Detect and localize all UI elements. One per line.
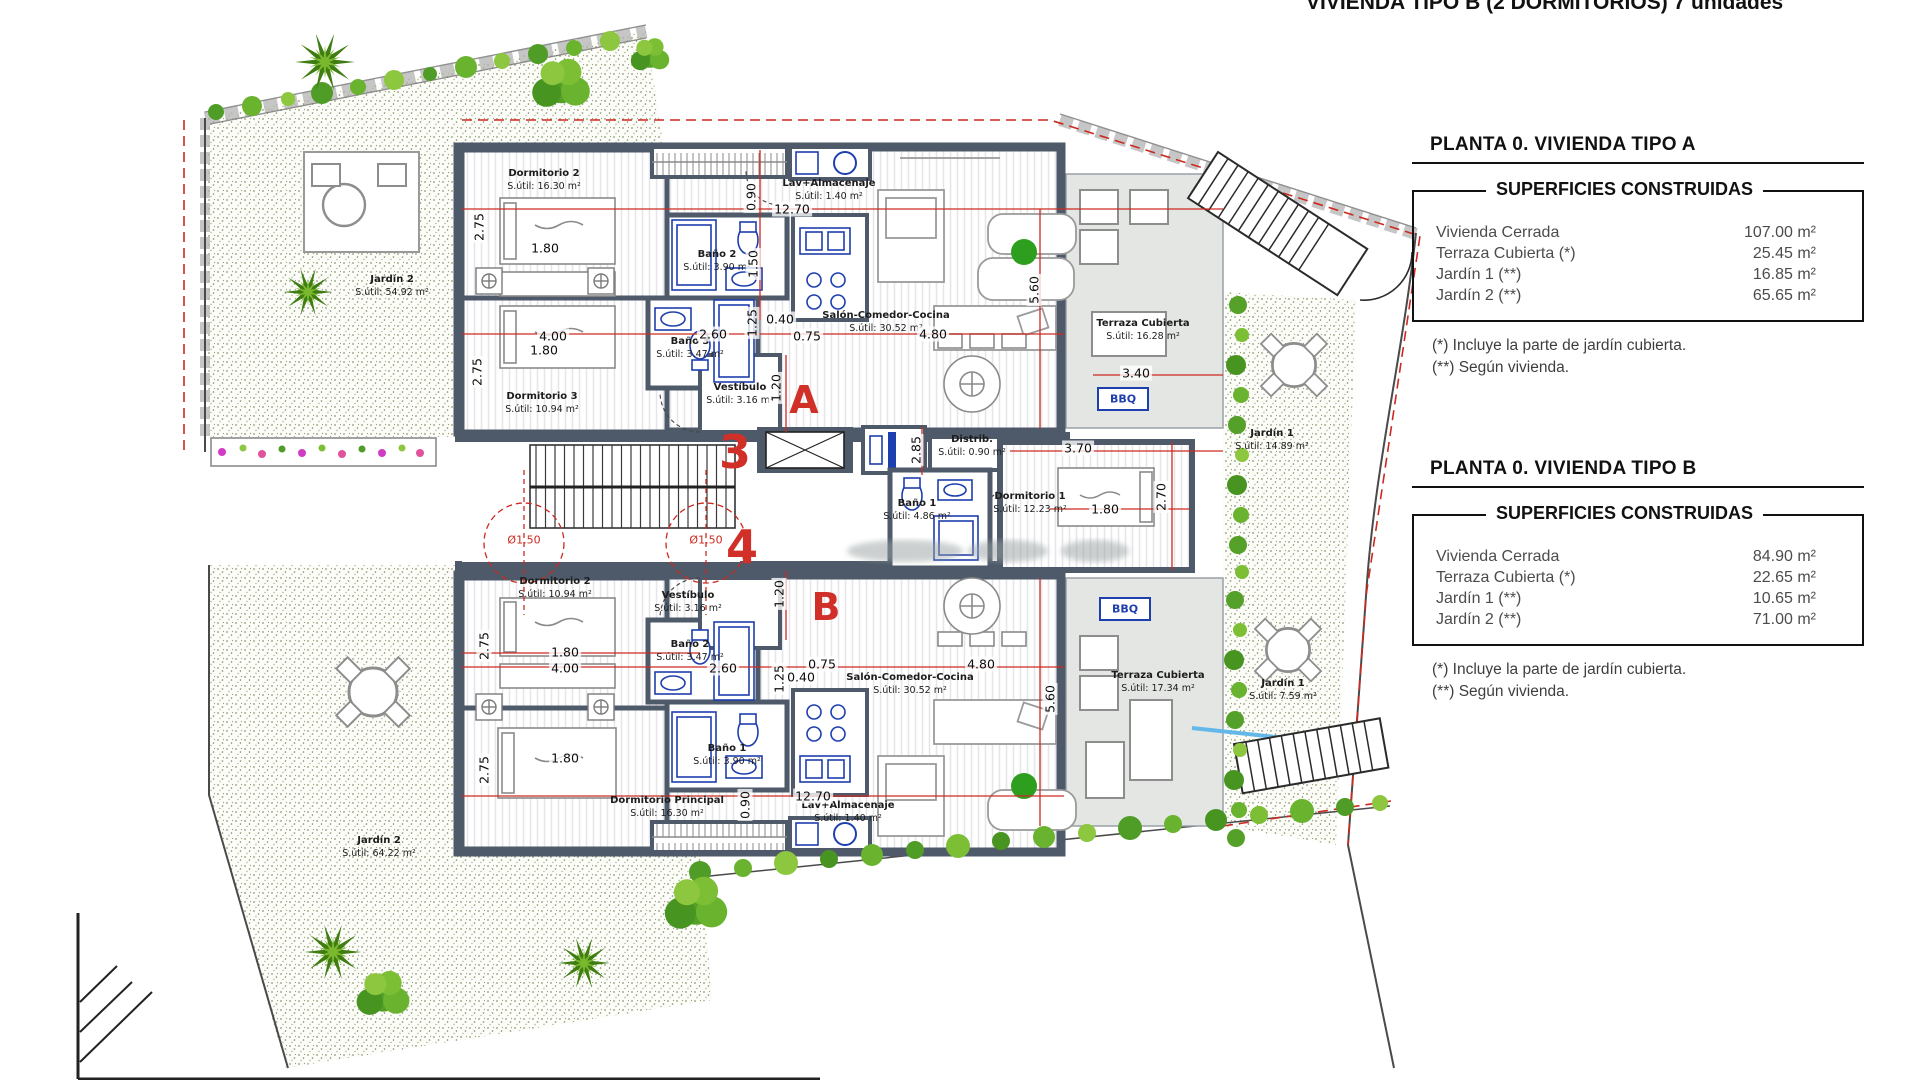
room-label-a-vestibulo: VestíbuloS.útil: 3.16 m² xyxy=(706,382,774,406)
dim-b-10: 1.80 xyxy=(549,751,581,766)
table-b-rule xyxy=(1412,486,1864,488)
table-b-box: SUPERFICIES CONSTRUIDAS Vivienda Cerrada… xyxy=(1412,514,1864,646)
portal-3-number: 3 xyxy=(719,425,751,479)
room-label-b-bano1: Baño 1S.útil: 3.90 m² xyxy=(693,743,761,767)
dim-b-8: 1.20 xyxy=(772,578,787,610)
table-row: Vivienda Cerrada84.90 m² xyxy=(1414,546,1862,567)
table-row: Terraza Cubierta (*)25.45 m² xyxy=(1414,243,1862,264)
table-b-title: PLANTA 0. VIVIENDA TIPO B xyxy=(1412,458,1864,480)
dim-a-14: 3.40 xyxy=(1120,366,1152,381)
dim-b-13: 5.60 xyxy=(1043,683,1058,715)
row-value: 65.65 m² xyxy=(1753,287,1816,305)
row-label: Vivienda Cerrada xyxy=(1436,224,1559,242)
table-b-notes: (*) Incluye la parte de jardín cubierta.… xyxy=(1412,659,1864,704)
table-a-subtitle: SUPERFICIES CONSTRUIDAS xyxy=(1486,179,1763,200)
dim-a-18: 2.70 xyxy=(1154,481,1169,513)
row-label: Jardín 2 (**) xyxy=(1436,287,1521,305)
room-label-b-dormitorio-principal: Dormitorio PrincipalS.útil: 16.30 m² xyxy=(610,795,724,819)
dim-b-3: 2.60 xyxy=(707,661,739,676)
row-value: 84.90 m² xyxy=(1753,548,1816,566)
dim-a-3: 1.80 xyxy=(528,343,560,358)
dim-a-9: 12.70 xyxy=(772,202,812,217)
turning-circle-label-left: Ø1.50 xyxy=(505,534,542,547)
table-row: Jardín 2 (**)71.00 m² xyxy=(1414,609,1862,630)
note-line: (**) Según vivienda. xyxy=(1432,357,1864,379)
room-label-a-jardin1: Jardín 1S.útil: 14.89 m² xyxy=(1235,428,1309,452)
dim-b-5: 0.40 xyxy=(785,670,817,685)
dim-a-7: 0.40 xyxy=(764,312,796,327)
dim-a-17: 1.80 xyxy=(1089,502,1121,517)
row-label: Jardín 2 (**) xyxy=(1436,611,1521,629)
turning-circle-label-right: Ø1.50 xyxy=(687,534,724,547)
room-label-a-lav: Lav+AlmacenajeS.útil: 1.40 m² xyxy=(782,178,875,202)
room-label-b-salon: Salón-Comedor-CocinaS.útil: 30.52 m² xyxy=(846,672,973,696)
dim-a-8: 0.75 xyxy=(791,329,823,344)
room-label-a-bano1: Baño 1S.útil: 4.86 m² xyxy=(883,498,951,522)
flower-bed xyxy=(218,445,424,459)
unit-b-building xyxy=(458,575,1076,852)
table-a-notes: (*) Incluye la parte de jardín cubierta.… xyxy=(1412,335,1864,380)
dim-b-9: 2.75 xyxy=(477,754,492,786)
row-value: 10.65 m² xyxy=(1753,590,1816,608)
dim-a-2: 4.00 xyxy=(537,329,569,344)
note-line: (**) Según vivienda. xyxy=(1432,681,1864,703)
table-row: Jardín 1 (**)10.65 m² xyxy=(1414,588,1862,609)
room-label-a-distrib: Distrib.S.útil: 0.90 m² xyxy=(938,434,1006,458)
bbq-label-a: BBQ xyxy=(1110,393,1136,406)
dim-a-16: 3.70 xyxy=(1062,441,1094,456)
room-label-a-terraza: Terraza CubiertaS.útil: 16.28 m² xyxy=(1096,318,1189,342)
row-label: Jardín 1 (**) xyxy=(1436,266,1521,284)
table-row: Terraza Cubierta (*)22.65 m² xyxy=(1414,567,1862,588)
terrace-a xyxy=(1066,174,1223,428)
dim-a-11: 1.50 xyxy=(746,248,761,280)
dim-b-6: 0.75 xyxy=(806,657,838,672)
table-b-subtitle: SUPERFICIES CONSTRUIDAS xyxy=(1486,503,1763,524)
table-row: Jardín 1 (**)16.85 m² xyxy=(1414,264,1862,285)
row-label: Jardín 1 (**) xyxy=(1436,590,1521,608)
terrace-b xyxy=(1066,578,1223,826)
row-value: 71.00 m² xyxy=(1753,611,1816,629)
table-a-box: SUPERFICIES CONSTRUIDAS Vivienda Cerrada… xyxy=(1412,190,1864,322)
room-label-a-jardin2: Jardín 2S.útil: 54.92 m² xyxy=(355,274,429,298)
dim-b-11: 12.70 xyxy=(793,789,833,804)
room-label-b-jardin1: Jardín 1S.útil: 7.59 m² xyxy=(1249,678,1317,702)
row-label: Vivienda Cerrada xyxy=(1436,548,1559,566)
room-label-b-jardin2: Jardín 2S.útil: 64.22 m² xyxy=(342,835,416,859)
floor-plan-sheet: VIVIENDA TIPO B (2 DORMITORIOS) 7 unidad… xyxy=(0,0,1920,1080)
room-label-a-dormitorio1: Dormitorio 1S.útil: 12.23 m² xyxy=(993,491,1067,515)
dim-a-10: 0.90 xyxy=(744,181,759,213)
row-label: Terraza Cubierta (*) xyxy=(1436,245,1576,263)
room-label-a-dormitorio3: Dormitorio 3S.útil: 10.94 m² xyxy=(505,391,579,415)
dim-a-0: 2.75 xyxy=(472,211,487,243)
dim-b-0: 2.75 xyxy=(477,630,492,662)
dim-b-2: 4.00 xyxy=(549,661,581,676)
room-label-a-bano2: Baño 2S.útil: 3.90 m² xyxy=(683,249,751,273)
unit-b-letter: B xyxy=(812,585,841,629)
dim-a-15: 2.85 xyxy=(909,434,924,466)
surface-table-tipo-b: PLANTA 0. VIVIENDA TIPO B SUPERFICIES CO… xyxy=(1412,458,1864,704)
portal-4-number: 4 xyxy=(726,520,758,574)
room-label-b-dormitorio2: Dormitorio 2S.útil: 10.94 m² xyxy=(518,576,592,600)
dim-a-1: 1.80 xyxy=(529,241,561,256)
table-a-rule xyxy=(1412,162,1864,164)
watermark xyxy=(847,540,1129,562)
row-value: 22.65 m² xyxy=(1753,569,1816,587)
dim-a-19: 1.20 xyxy=(769,372,784,404)
dim-a-13: 5.60 xyxy=(1027,274,1042,306)
dim-b-12: 0.90 xyxy=(738,789,753,821)
row-value: 16.85 m² xyxy=(1753,266,1816,284)
unit-a-letter: A xyxy=(789,378,818,422)
room-label-b-vestibulo: VestíbuloS.útil: 3.16 m² xyxy=(654,590,722,614)
table-a-title: PLANTA 0. VIVIENDA TIPO A xyxy=(1412,134,1864,156)
note-line: (*) Incluye la parte de jardín cubierta. xyxy=(1432,659,1864,681)
room-label-a-dormitorio2: Dormitorio 2S.útil: 16.30 m² xyxy=(507,168,581,192)
table-row: Jardín 2 (**)65.65 m² xyxy=(1414,285,1862,306)
row-value: 107.00 m² xyxy=(1744,224,1816,242)
table-row: Vivienda Cerrada107.00 m² xyxy=(1414,222,1862,243)
dim-b-1: 1.80 xyxy=(549,645,581,660)
room-label-b-terraza: Terraza CubiertaS.útil: 17.34 m² xyxy=(1111,670,1204,694)
dim-b-7: 4.80 xyxy=(965,657,997,672)
sheet-title: VIVIENDA TIPO B (2 DORMITORIOS) 7 unidad… xyxy=(1306,0,1783,15)
bbq-label-b: BBQ xyxy=(1112,603,1138,616)
dim-a-12: 4.80 xyxy=(917,327,949,342)
row-label: Terraza Cubierta (*) xyxy=(1436,569,1576,587)
surface-table-tipo-a: PLANTA 0. VIVIENDA TIPO A SUPERFICIES CO… xyxy=(1412,134,1864,380)
dim-a-6: 1.25 xyxy=(745,307,760,339)
row-value: 25.45 m² xyxy=(1753,245,1816,263)
dim-a-5: 2.60 xyxy=(697,327,729,342)
dim-a-4: 2.75 xyxy=(470,356,485,388)
note-line: (*) Incluye la parte de jardín cubierta. xyxy=(1432,335,1864,357)
